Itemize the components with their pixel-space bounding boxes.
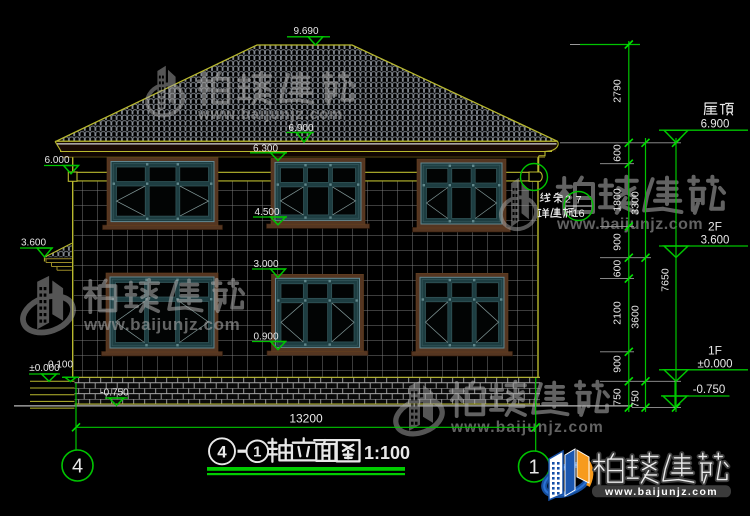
- svg-text:6.900: 6.900: [701, 119, 730, 131]
- svg-text:900: 900: [612, 233, 624, 251]
- svg-text:7: 7: [575, 195, 581, 207]
- svg-text:1:100: 1:100: [364, 443, 410, 463]
- svg-text:www.baijunjz.com: www.baijunjz.com: [83, 315, 240, 334]
- svg-text:1: 1: [528, 457, 539, 479]
- svg-text:3600: 3600: [630, 305, 642, 329]
- svg-text:2F: 2F: [708, 220, 722, 234]
- svg-text:3.600: 3.600: [701, 235, 730, 247]
- svg-text:7650: 7650: [660, 268, 672, 292]
- svg-text:2790: 2790: [612, 79, 624, 103]
- svg-text:600: 600: [612, 144, 624, 162]
- svg-text:750: 750: [612, 388, 624, 406]
- svg-text:1: 1: [253, 444, 261, 461]
- svg-text:2: 2: [565, 194, 571, 206]
- svg-text:3.600: 3.600: [21, 238, 46, 249]
- svg-text:750: 750: [630, 390, 642, 408]
- svg-text:www.baijunjz.com: www.baijunjz.com: [197, 106, 343, 123]
- svg-text:6.000: 6.000: [44, 155, 69, 166]
- svg-text:9.690: 9.690: [293, 26, 318, 37]
- svg-text:2100: 2100: [612, 301, 624, 325]
- svg-text:16: 16: [572, 208, 584, 220]
- svg-text:600: 600: [612, 260, 624, 278]
- svg-text:13200: 13200: [289, 412, 323, 426]
- svg-text:3300: 3300: [630, 191, 642, 215]
- svg-text:900: 900: [612, 355, 624, 373]
- svg-text:4: 4: [217, 442, 227, 461]
- svg-text:1F: 1F: [708, 343, 722, 357]
- svg-text:-0.750: -0.750: [100, 388, 129, 399]
- svg-text:0.100: 0.100: [48, 359, 73, 370]
- svg-text:4: 4: [72, 456, 83, 478]
- svg-text:1800: 1800: [612, 188, 624, 212]
- svg-text:±0.000: ±0.000: [697, 358, 732, 370]
- svg-text:www.baijunjz.com: www.baijunjz.com: [604, 486, 718, 498]
- svg-text:-0.750: -0.750: [693, 384, 726, 396]
